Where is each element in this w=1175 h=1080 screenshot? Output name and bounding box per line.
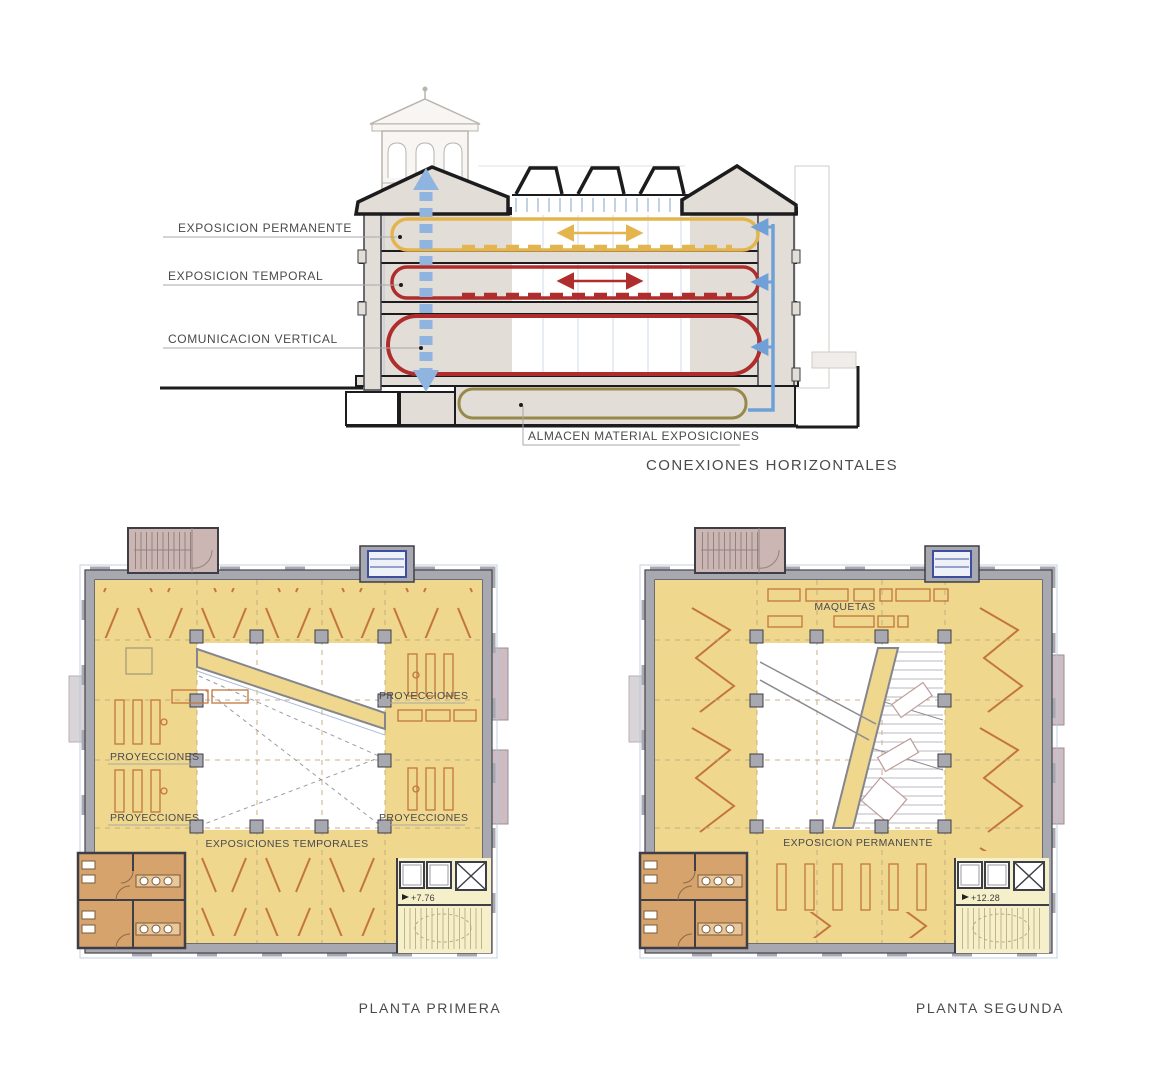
annex-block: [492, 750, 508, 824]
label-proyecciones: PROYECCIONES: [110, 812, 199, 824]
plan-planta-primera: PROYECCIONES PROYECCIONES PROYECCIONES P…: [69, 528, 508, 1016]
level-mark: +12.28: [971, 893, 1000, 903]
architectural-sheet: EXPOSICION PERMANENTE EXPOSICION TEMPORA…: [0, 0, 1175, 1080]
label-comunicacion-vertical: COMUNICACION VERTICAL: [168, 332, 338, 346]
elevator-stair-core: [397, 858, 491, 953]
label-proyecciones: PROYECCIONES: [379, 690, 468, 702]
label-almacen: ALMACEN MATERIAL EXPOSICIONES: [528, 429, 759, 443]
roof-elevator-symbol: [360, 546, 414, 582]
floor-hatching: [190, 856, 385, 936]
label-maquetas: MAQUETAS: [814, 601, 875, 613]
wall-left: [364, 214, 381, 390]
label-proyecciones: PROYECCIONES: [110, 751, 199, 763]
floor-zigzag: [947, 596, 1042, 851]
section-title: CONEXIONES HORIZONTALES: [646, 457, 898, 474]
exterior-stair-block: [128, 528, 218, 573]
roof-elevator-symbol: [925, 546, 979, 582]
plan2-title: PLANTA SEGUNDA: [916, 1000, 1064, 1016]
plan-planta-segunda: MAQUETAS EXPOSICION PERMANENTE +12.28 PL…: [629, 528, 1064, 1016]
annex-block: [1052, 748, 1064, 824]
floor-hatching: [100, 588, 478, 638]
elevator-stair-core: [955, 858, 1049, 953]
label-exposicion-permanente: EXPOSICION PERMANENTE: [178, 221, 352, 235]
bathroom-block: [640, 853, 747, 948]
level-mark: +7.76: [411, 893, 435, 903]
label-exposiciones-temporales: EXPOSICIONES TEMPORALES: [205, 838, 368, 850]
label-exposicion-permanente: EXPOSICION PERMANENTE: [783, 837, 933, 849]
exterior-stair-block: [695, 528, 785, 573]
bathroom-block: [78, 853, 185, 948]
floor-zigzag: [757, 912, 939, 938]
label-exposicion-temporal: EXPOSICION TEMPORAL: [168, 269, 323, 283]
floor-zigzag: [652, 596, 750, 846]
label-proyecciones: PROYECCIONES: [379, 812, 468, 824]
plan1-title: PLANTA PRIMERA: [359, 1000, 502, 1016]
